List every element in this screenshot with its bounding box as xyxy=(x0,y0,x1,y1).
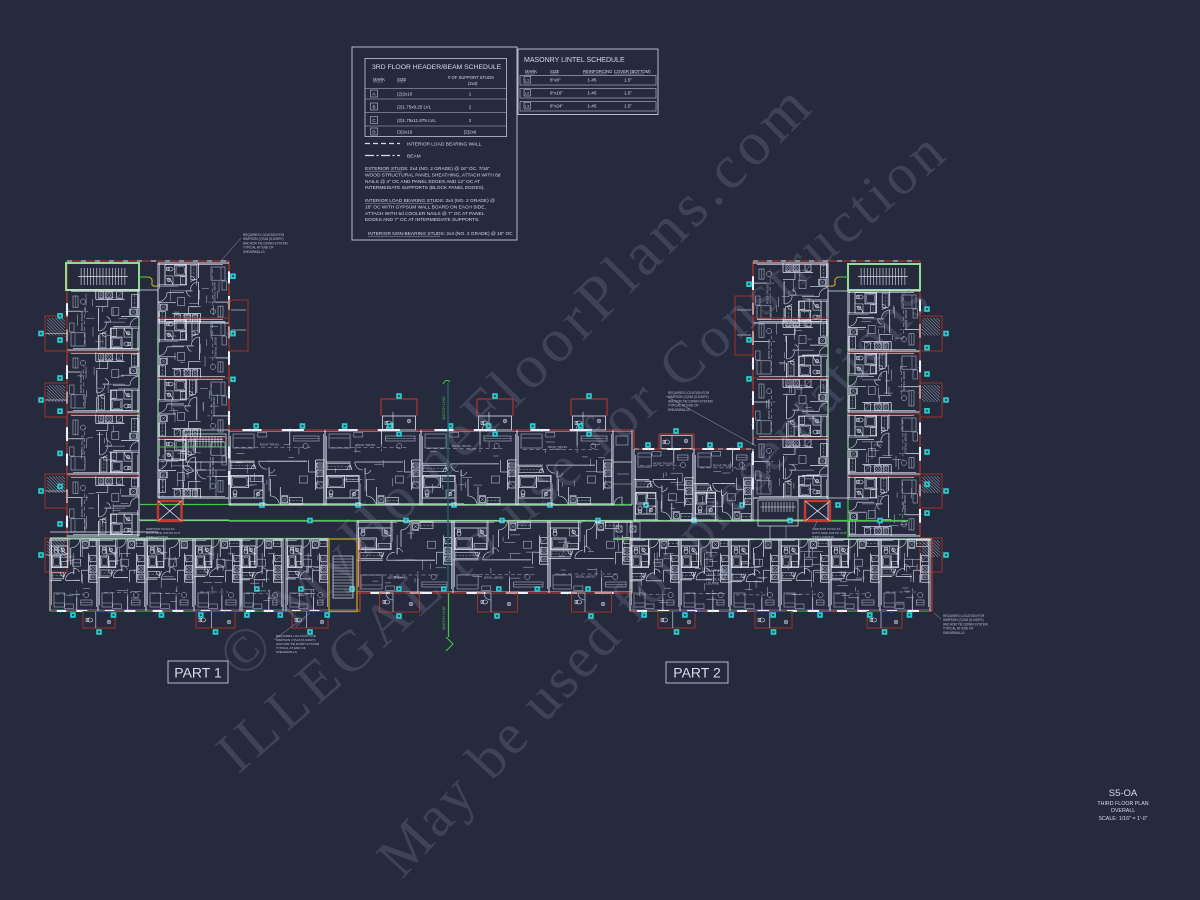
svg-text:EDGES AND 7" OC AT INTERMEDIAT: EDGES AND 7" OC AT INTERMEDIATE SUPPORTS… xyxy=(365,217,480,223)
svg-text:SIZE: SIZE xyxy=(550,69,560,74)
svg-text:ROOF TRUSS: ROOF TRUSS xyxy=(213,282,217,302)
svg-text:INTERIOR LOAD BEARING WALL: INTERIOR LOAD BEARING WALL xyxy=(407,142,482,148)
svg-text:PART 1: PART 1 xyxy=(174,665,222,681)
svg-text:ROOF TRUSS: ROOF TRUSS xyxy=(903,433,907,453)
svg-text:NAILS @ 4" OC AND PANEL EDGES: NAILS @ 4" OC AND PANEL EDGES AND 12" OC… xyxy=(365,179,480,185)
svg-text:ROOF TRUSS: ROOF TRUSS xyxy=(80,311,84,331)
svg-text:SHEARWALLS: SHEARWALLS xyxy=(243,250,265,254)
svg-text:B: B xyxy=(372,105,375,110)
svg-text:ITEM LOADING: ITEM LOADING xyxy=(146,535,169,539)
svg-text:1.5": 1.5" xyxy=(624,104,632,109)
svg-text:1-#5: 1-#5 xyxy=(587,104,597,109)
svg-text:PART 2: PART 2 xyxy=(673,665,721,681)
svg-text:(2)2x10: (2)2x10 xyxy=(397,92,413,97)
svg-text:(2)1.75x9.25 LVL: (2)1.75x9.25 LVL xyxy=(397,105,432,110)
svg-text:BEAM: BEAM xyxy=(407,154,421,160)
svg-text:3RD FLOOR HEADER/BEAM SCHEDULE: 3RD FLOOR HEADER/BEAM SCHEDULE xyxy=(372,64,502,71)
svg-text:REINFORCING: REINFORCING xyxy=(583,69,612,74)
svg-text:S5-OA: S5-OA xyxy=(1109,788,1138,799)
svg-text:8"x24": 8"x24" xyxy=(550,104,563,109)
svg-text:ITEM LOADING: ITEM LOADING xyxy=(812,535,835,539)
svg-text:ROOF TRUSS: ROOF TRUSS xyxy=(211,457,215,477)
svg-text:8"x8": 8"x8" xyxy=(550,78,561,83)
svg-text:1.5": 1.5" xyxy=(624,91,632,96)
svg-text:SIZE: SIZE xyxy=(397,77,407,82)
svg-text:L2: L2 xyxy=(525,91,530,96)
svg-text:LOUVRE: LOUVRE xyxy=(706,582,719,586)
svg-text:1-#5: 1-#5 xyxy=(587,78,597,83)
svg-text:ROOF TRUSS: ROOF TRUSS xyxy=(653,461,673,465)
svg-text:ROOF TRUSS: ROOF TRUSS xyxy=(212,397,216,417)
svg-text:ROOF TRUSS: ROOF TRUSS xyxy=(356,443,376,447)
svg-text:(3)2x10: (3)2x10 xyxy=(397,130,413,135)
svg-text:COVER (BOTTOM): COVER (BOTTOM) xyxy=(614,69,651,74)
svg-text:# OF SUPPORT STUDS: # OF SUPPORT STUDS xyxy=(448,75,494,80)
svg-text:INTERMEDIATE SUPPORTS (BLOCK P: INTERMEDIATE SUPPORTS (BLOCK PANEL EDGES… xyxy=(365,185,485,191)
svg-text:(2x4): (2x4) xyxy=(468,81,478,86)
svg-text:MARK: MARK xyxy=(525,69,537,74)
svg-text:THIRD FLOOR PLAN: THIRD FLOOR PLAN xyxy=(1097,801,1148,807)
svg-text:ROOF TRUSS: ROOF TRUSS xyxy=(80,497,84,517)
svg-text:ROOF TRUSS: ROOF TRUSS xyxy=(80,435,84,455)
svg-text:OVERALL: OVERALL xyxy=(1111,808,1135,814)
svg-text:L1: L1 xyxy=(525,78,530,83)
svg-text:ROOF TRUSS: ROOF TRUSS xyxy=(260,443,280,447)
svg-text:8"x16": 8"x16" xyxy=(550,91,563,96)
svg-text:(2)2x6: (2)2x6 xyxy=(464,130,477,135)
svg-text:ATTACH WITH 5d COOLER NAILS @: ATTACH WITH 5d COOLER NAILS @ 7" OC AT P… xyxy=(365,211,485,217)
svg-text:ROOF TRUSS: ROOF TRUSS xyxy=(576,575,596,579)
svg-text:1-#5: 1-#5 xyxy=(587,91,597,96)
svg-text:MARK: MARK xyxy=(373,77,385,82)
svg-text:A: A xyxy=(372,92,375,97)
svg-text:16" OC WITH GYPSUM WALL BOARD: 16" OC WITH GYPSUM WALL BOARD ON EACH SI… xyxy=(365,204,486,210)
svg-text:WOOD STRUCTURAL PANEL SHEATHIN: WOOD STRUCTURAL PANEL SHEATHING, ATTACH … xyxy=(365,172,501,178)
svg-text:(2)1.75x11.875 LVL: (2)1.75x11.875 LVL xyxy=(397,118,436,123)
svg-text:ROOF TRUSS: ROOF TRUSS xyxy=(213,337,217,357)
svg-text:SHEARWALLS: SHEARWALLS xyxy=(943,631,965,635)
svg-text:ROOF TRUSS: ROOF TRUSS xyxy=(902,371,906,391)
svg-text:MASONRY LINTEL SCHEDULE: MASONRY LINTEL SCHEDULE xyxy=(524,57,625,64)
svg-text:SCALE: 1/16" = 1'-0": SCALE: 1/16" = 1'-0" xyxy=(1098,816,1147,822)
svg-text:L3: L3 xyxy=(525,104,530,109)
svg-text:1.5": 1.5" xyxy=(624,78,632,83)
svg-text:ROOF TRUSS: ROOF TRUSS xyxy=(767,339,771,359)
